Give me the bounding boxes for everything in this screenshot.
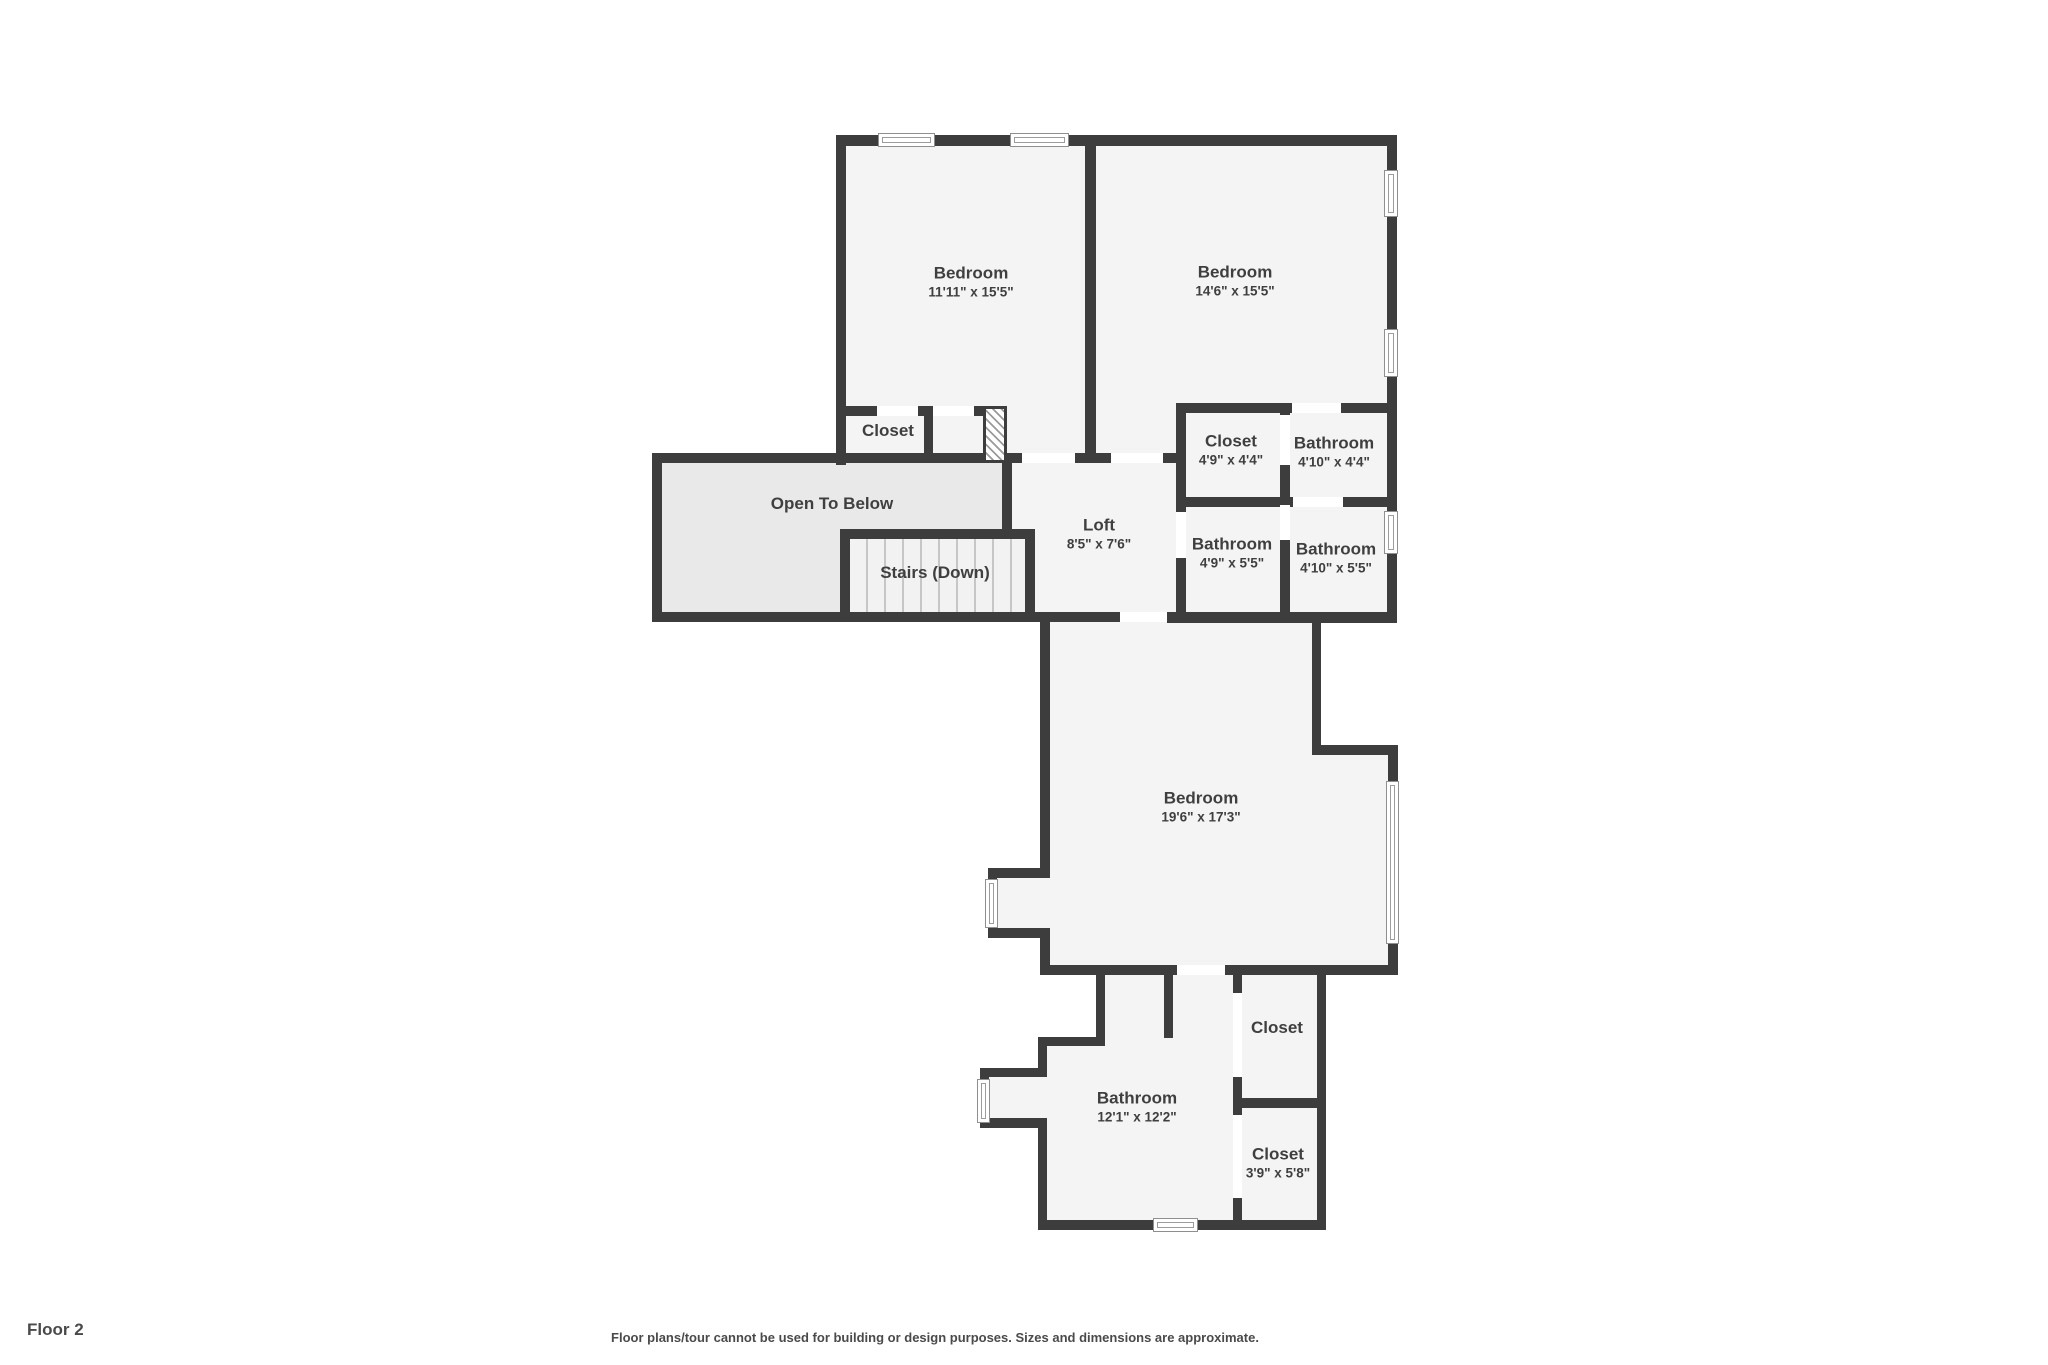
floor-title: Floor 2: [27, 1320, 84, 1340]
wall-segment: [1233, 975, 1242, 993]
room-label-stairs-down: Stairs (Down): [880, 563, 990, 583]
room-label-bedroom-top-left: Bedroom 11'11" x 15'5": [928, 264, 1013, 301]
room-label-loft: Loft 8'5" x 7'6": [1067, 516, 1131, 553]
disclaimer-text: Floor plans/tour cannot be used for buil…: [611, 1330, 1259, 1345]
door-opening: [1233, 993, 1242, 1077]
wall-segment: [1341, 403, 1397, 413]
door-opening: [1176, 512, 1186, 558]
door-opening: [1280, 505, 1290, 540]
door-opening: [933, 406, 974, 416]
room-label-bathroom-top: Bathroom 4'10" x 4'4": [1294, 434, 1374, 471]
wall-segment: [1312, 745, 1398, 755]
room-label-bathroom-large: Bathroom 12'1" x 12'2": [1097, 1089, 1177, 1126]
room-label-closet-bottom-top: Closet: [1251, 1018, 1303, 1038]
window-marker: [878, 133, 935, 147]
room-label-bedroom-large: Bedroom 19'6" x 17'3": [1161, 789, 1240, 826]
wall-segment: [980, 1118, 1047, 1128]
shaft-hatch: [983, 406, 1007, 463]
wall-segment: [1025, 539, 1035, 622]
wall-segment: [1176, 403, 1186, 512]
door-opening: [877, 406, 918, 416]
wall-segment: [1176, 403, 1292, 413]
wall-segment: [1343, 497, 1397, 507]
wall-segment: [1176, 497, 1293, 507]
wall-segment: [1164, 975, 1173, 1038]
wall-segment: [840, 529, 850, 622]
window-marker: [1384, 170, 1398, 217]
door-opening: [1111, 453, 1163, 463]
wall-segment: [988, 868, 1050, 878]
wall-segment: [1242, 1098, 1317, 1108]
door-opening: [1120, 612, 1167, 622]
wall-segment: [1280, 465, 1290, 505]
wall-segment: [1233, 1077, 1242, 1115]
wall-segment: [924, 415, 933, 453]
wall-segment: [1176, 558, 1186, 623]
wall-segment: [1038, 1118, 1047, 1230]
wall-segment: [1225, 965, 1397, 975]
wall-segment: [980, 1068, 1047, 1077]
wall-segment: [1317, 975, 1326, 1230]
wall-segment: [1280, 540, 1290, 623]
window-marker: [1153, 1218, 1198, 1232]
room-label-closet-top-left: Closet: [862, 421, 914, 441]
wall-segment: [1040, 612, 1050, 878]
room-label-bathroom-mid-left: Bathroom 4'9" x 5'5": [1192, 535, 1272, 572]
room-label-bathroom-mid-right: Bathroom 4'10" x 5'5": [1296, 540, 1376, 577]
room-label-closet-bottom-bottom: Closet 3'9" x 5'8": [1246, 1145, 1310, 1182]
exterior-notch: [1038, 975, 1096, 1037]
floor-plan: Bedroom 11'11" x 15'5" Bedroom 14'6" x 1…: [0, 0, 2048, 1365]
wall-segment: [1002, 453, 1012, 539]
window-marker: [1386, 781, 1399, 944]
window-marker: [1384, 329, 1398, 377]
open-to-below-fill: [662, 463, 840, 612]
wall-segment: [1085, 135, 1096, 463]
window-marker: [985, 879, 998, 928]
wall-segment: [1280, 403, 1290, 415]
window-marker: [1384, 511, 1398, 554]
wall-segment: [1038, 1037, 1105, 1046]
door-opening: [1280, 415, 1290, 465]
wall-segment: [836, 406, 877, 416]
room-label-bedroom-top-right: Bedroom 14'6" x 15'5": [1195, 263, 1274, 300]
wall-segment: [1096, 975, 1105, 1046]
wall-segment: [1075, 453, 1111, 463]
window-marker: [1010, 133, 1069, 147]
door-opening: [1292, 403, 1341, 413]
wall-segment: [652, 453, 662, 622]
window-marker: [977, 1079, 990, 1123]
door-opening: [1293, 497, 1343, 507]
door-opening: [1022, 453, 1075, 463]
wall-segment: [652, 453, 1022, 463]
door-opening: [1177, 965, 1225, 975]
wall-segment: [1312, 622, 1321, 755]
door-opening: [1233, 1115, 1242, 1198]
wall-segment: [1043, 965, 1177, 975]
room-label-closet-small: Closet 4'9" x 4'4": [1199, 432, 1263, 469]
room-label-open-to-below: Open To Below: [771, 494, 893, 514]
